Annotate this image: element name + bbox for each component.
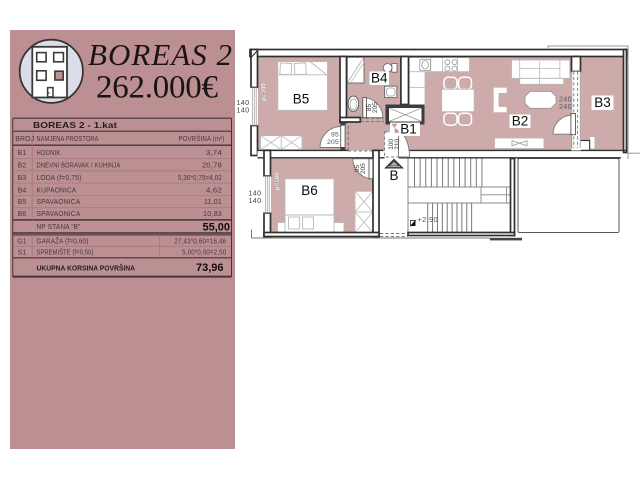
svg-text:4,62: 4,62: [206, 188, 222, 195]
svg-text:BROJ: BROJ: [15, 136, 34, 143]
svg-text:B2: B2: [512, 113, 529, 128]
svg-text:205: 205: [327, 139, 339, 146]
svg-text:140: 140: [249, 196, 262, 205]
svg-text:140: 140: [237, 106, 250, 115]
svg-text:BOREAS 2: BOREAS 2: [88, 37, 232, 72]
svg-text:p=100: p=100: [261, 83, 268, 101]
svg-text:240: 240: [559, 102, 572, 111]
svg-text:LODA (f=0,75): LODA (f=0,75): [37, 175, 82, 182]
svg-text:27,43*0,60=16,46: 27,43*0,60=16,46: [174, 239, 226, 246]
svg-text:UKUPNA KORSINA POVRŠINA: UKUPNA KORSINA POVRŠINA: [37, 263, 136, 272]
svg-text:HODNIK: HODNIK: [37, 150, 61, 157]
svg-text:p=100: p=100: [274, 172, 281, 190]
svg-text:B5: B5: [18, 199, 27, 206]
svg-text:210: 210: [394, 138, 401, 149]
svg-text:B3: B3: [18, 175, 27, 182]
svg-text:KUPAONICA: KUPAONICA: [37, 188, 77, 195]
svg-text:BOREAS 2 - 1.kat: BOREAS 2 - 1.kat: [33, 121, 117, 130]
svg-text:NAMJENA PROSTORA: NAMJENA PROSTORA: [37, 136, 99, 143]
svg-text:SPREMIŠTE (f=0,50): SPREMIŠTE (f=0,50): [37, 248, 94, 257]
svg-text:10,83: 10,83: [203, 211, 222, 218]
svg-text:SPAVAONICA: SPAVAONICA: [37, 199, 81, 206]
svg-text:5,36*0,75=4,02: 5,36*0,75=4,02: [178, 175, 222, 182]
svg-text:GARAŽA (f=0,60): GARAŽA (f=0,60): [37, 237, 89, 246]
svg-text:B4: B4: [371, 71, 388, 86]
svg-text:B1: B1: [400, 121, 417, 136]
svg-text:G1: G1: [17, 239, 27, 246]
svg-text:73,96: 73,96: [196, 262, 224, 274]
svg-text:3,74: 3,74: [206, 150, 222, 157]
svg-text:SPAVAONICA: SPAVAONICA: [37, 211, 81, 218]
svg-text:205: 205: [360, 163, 367, 174]
svg-text:POVRŠINA (m²): POVRŠINA (m²): [179, 134, 225, 143]
svg-text:262.000€: 262.000€: [96, 70, 218, 106]
svg-text:205: 205: [372, 102, 379, 113]
svg-text:B5: B5: [293, 91, 310, 106]
svg-text:B4: B4: [18, 188, 27, 195]
svg-text:20,78: 20,78: [202, 162, 222, 169]
svg-text:B6: B6: [301, 183, 318, 198]
svg-text:DNEVNI BORAVAK I KUHINJA: DNEVNI BORAVAK I KUHINJA: [37, 162, 121, 169]
svg-text:55,00: 55,00: [202, 222, 230, 234]
svg-text:95: 95: [331, 131, 339, 138]
svg-text:+2,90: +2,90: [418, 215, 438, 224]
svg-text:11,01: 11,01: [204, 199, 222, 206]
svg-text:S1: S1: [18, 250, 27, 257]
svg-text:B1: B1: [18, 150, 27, 157]
svg-text:B3: B3: [594, 95, 611, 110]
svg-text:B: B: [389, 168, 398, 183]
svg-text:B6: B6: [18, 211, 27, 218]
svg-text:5,00*0,50=2,50: 5,00*0,50=2,50: [182, 250, 226, 257]
svg-text:NP STANA “B”: NP STANA “B”: [37, 224, 81, 231]
svg-text:B2: B2: [18, 162, 27, 169]
